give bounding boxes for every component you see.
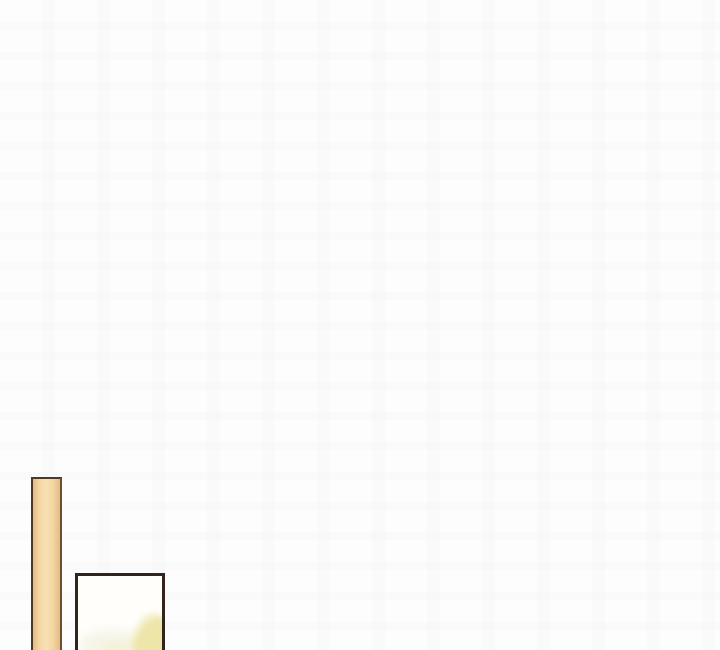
- wooden-plank: [31, 477, 62, 650]
- comic-panel-canvas: [0, 0, 720, 650]
- picture-frame-inner: [78, 576, 162, 650]
- watercolor-wash-yellow: [130, 612, 162, 650]
- picture-frame: [75, 573, 165, 650]
- ghost-watermark-pattern: [0, 0, 720, 650]
